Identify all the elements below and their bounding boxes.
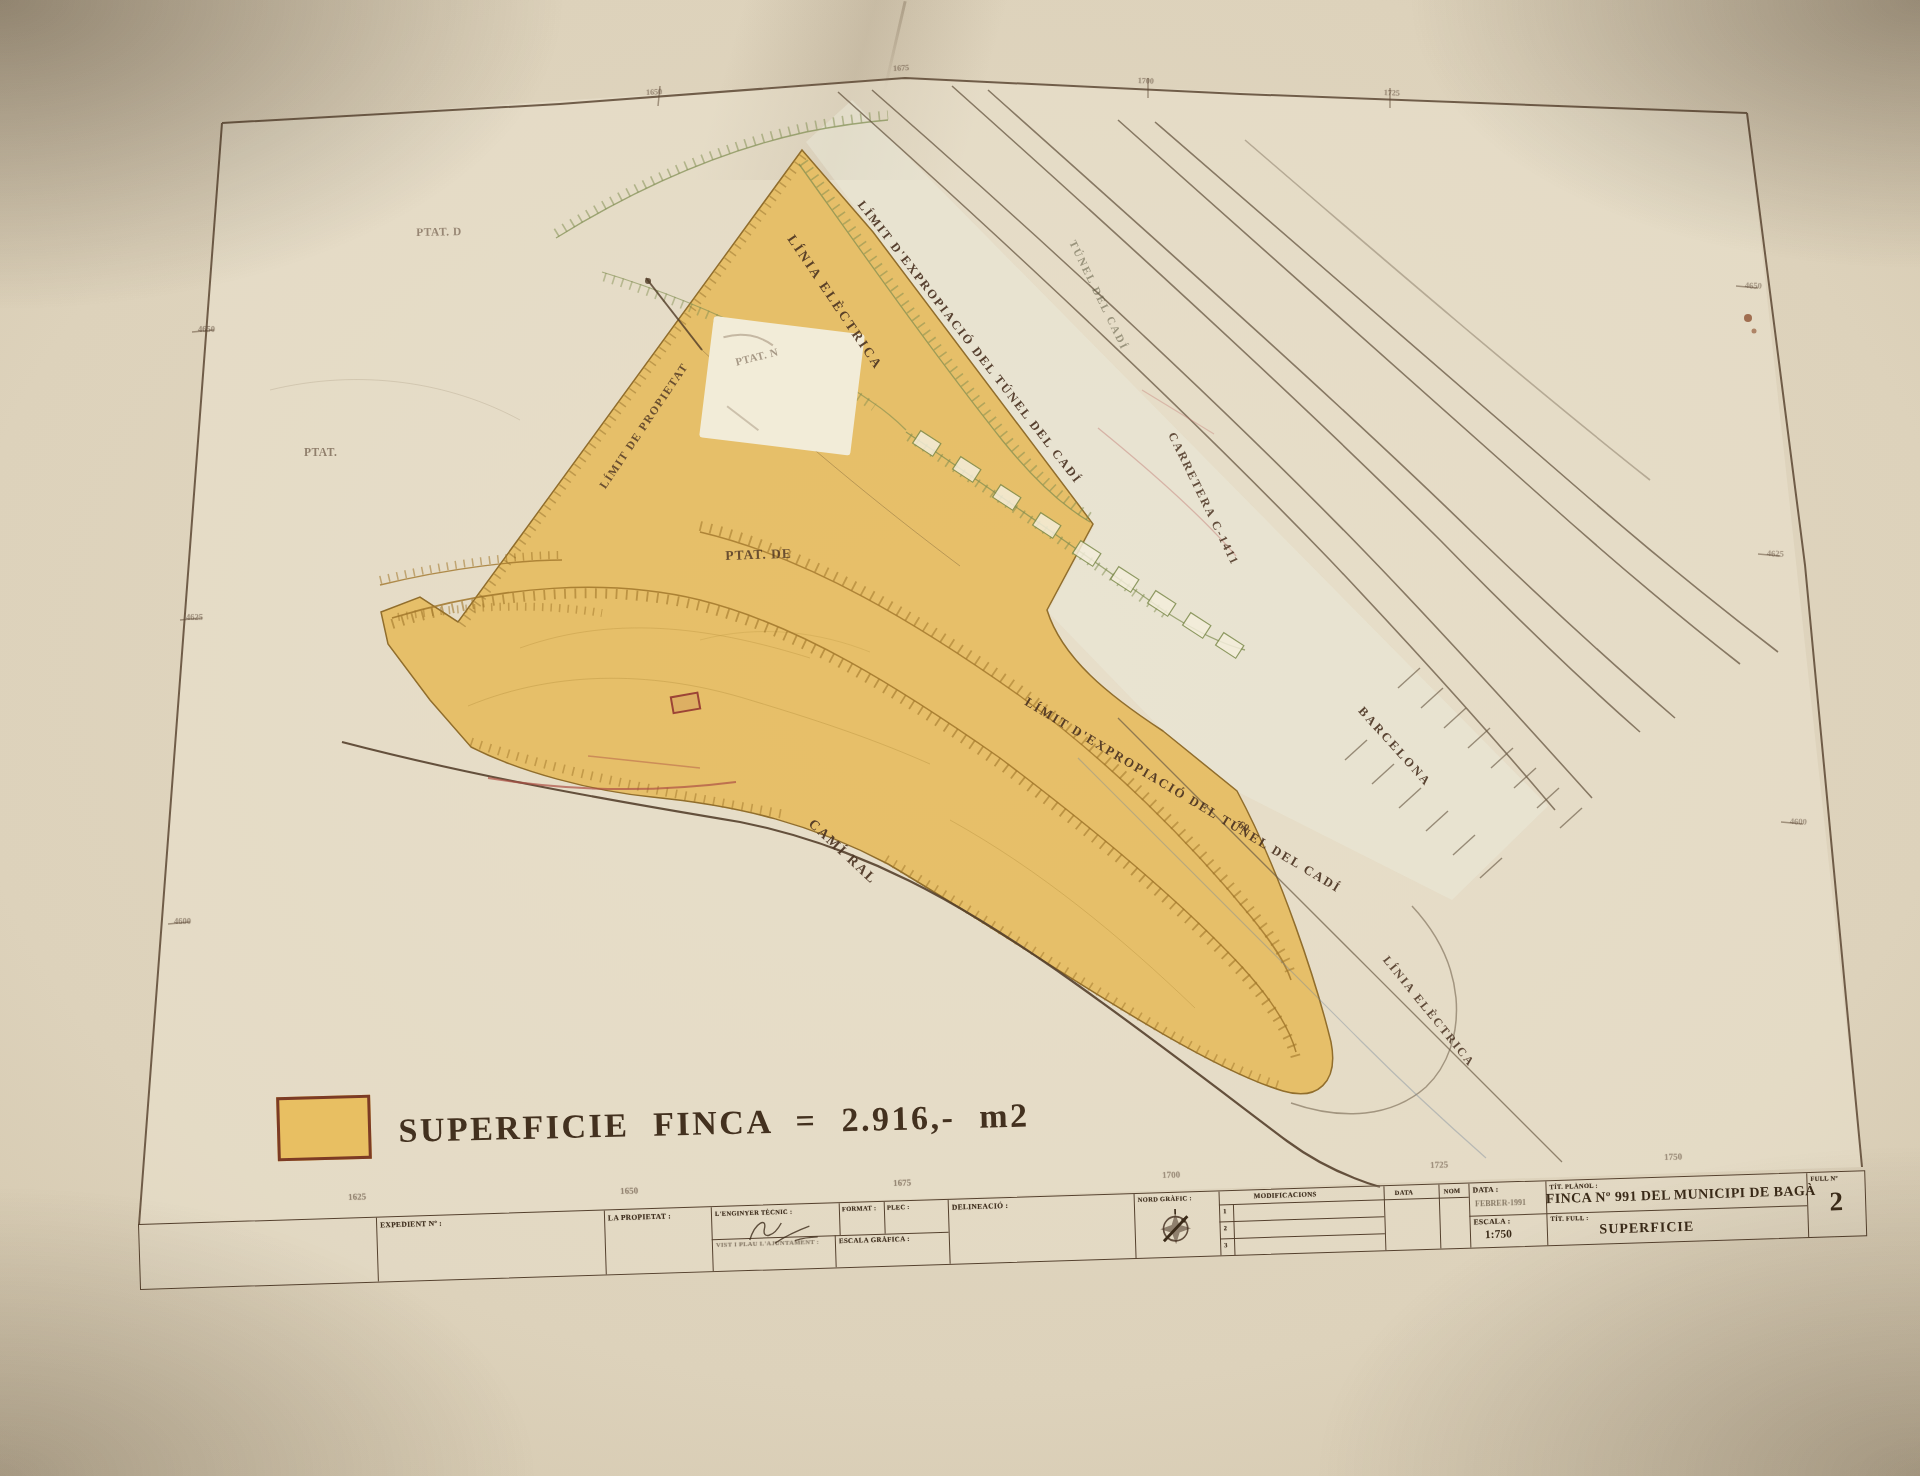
white-patch [699, 316, 865, 456]
tb-divider [1438, 1185, 1441, 1249]
tb-divider [1233, 1204, 1236, 1255]
tb-divider [1219, 1191, 1222, 1255]
tb-divider [839, 1203, 841, 1235]
tit-full-label: TÍT. FULL : [1550, 1214, 1588, 1222]
format-label: FORMAT : [842, 1204, 877, 1212]
escala-grafica-label: ESCALA GRÀFICA : [839, 1235, 910, 1245]
tb-divider [1546, 1205, 1807, 1214]
tb-divider [884, 1202, 886, 1234]
escala-label: ESCALA : [1473, 1216, 1510, 1226]
data-label: DATA : [1472, 1185, 1498, 1195]
col-data-header: DATA [1395, 1188, 1414, 1196]
tb-divider [1383, 1186, 1386, 1250]
compass-rose-icon [1153, 1206, 1198, 1251]
modificacions-header: MODIFICACIONS [1254, 1190, 1317, 1200]
nord-label: NORD GRÀFIC : [1138, 1194, 1192, 1203]
tb-divider [376, 1218, 379, 1282]
col-nom-header: NOM [1443, 1187, 1460, 1195]
tb-divider [1219, 1216, 1384, 1222]
tb-divider [1220, 1233, 1385, 1239]
legend-swatch [276, 1095, 372, 1162]
propietat-label: LA PROPIETAT : [608, 1211, 671, 1222]
tb-divider [835, 1235, 837, 1267]
expedient-label: EXPEDIENT Nº : [380, 1219, 442, 1230]
signature-icon [739, 1210, 830, 1253]
mods-row-2: 2 [1224, 1224, 1228, 1231]
plec-label: PLEC : [887, 1203, 910, 1211]
scanned-plan-photo: LÍNIA ELÈCTRICALÍMIT D'EXPROPIACIÓ DEL T… [0, 0, 1920, 1476]
mods-row-1: 1 [1223, 1207, 1227, 1214]
delineacio-label: DELINEACIÓ : [952, 1201, 1009, 1212]
full-num-label: FULL Nº [1810, 1174, 1838, 1182]
mods-row-3: 3 [1224, 1241, 1228, 1248]
full-num-value: 2 [1807, 1185, 1866, 1218]
tb-divider [1134, 1194, 1137, 1258]
escala-value: 1:750 [1485, 1227, 1512, 1240]
tb-divider [604, 1210, 607, 1274]
data-value: FEBRER-1991 [1475, 1198, 1526, 1209]
